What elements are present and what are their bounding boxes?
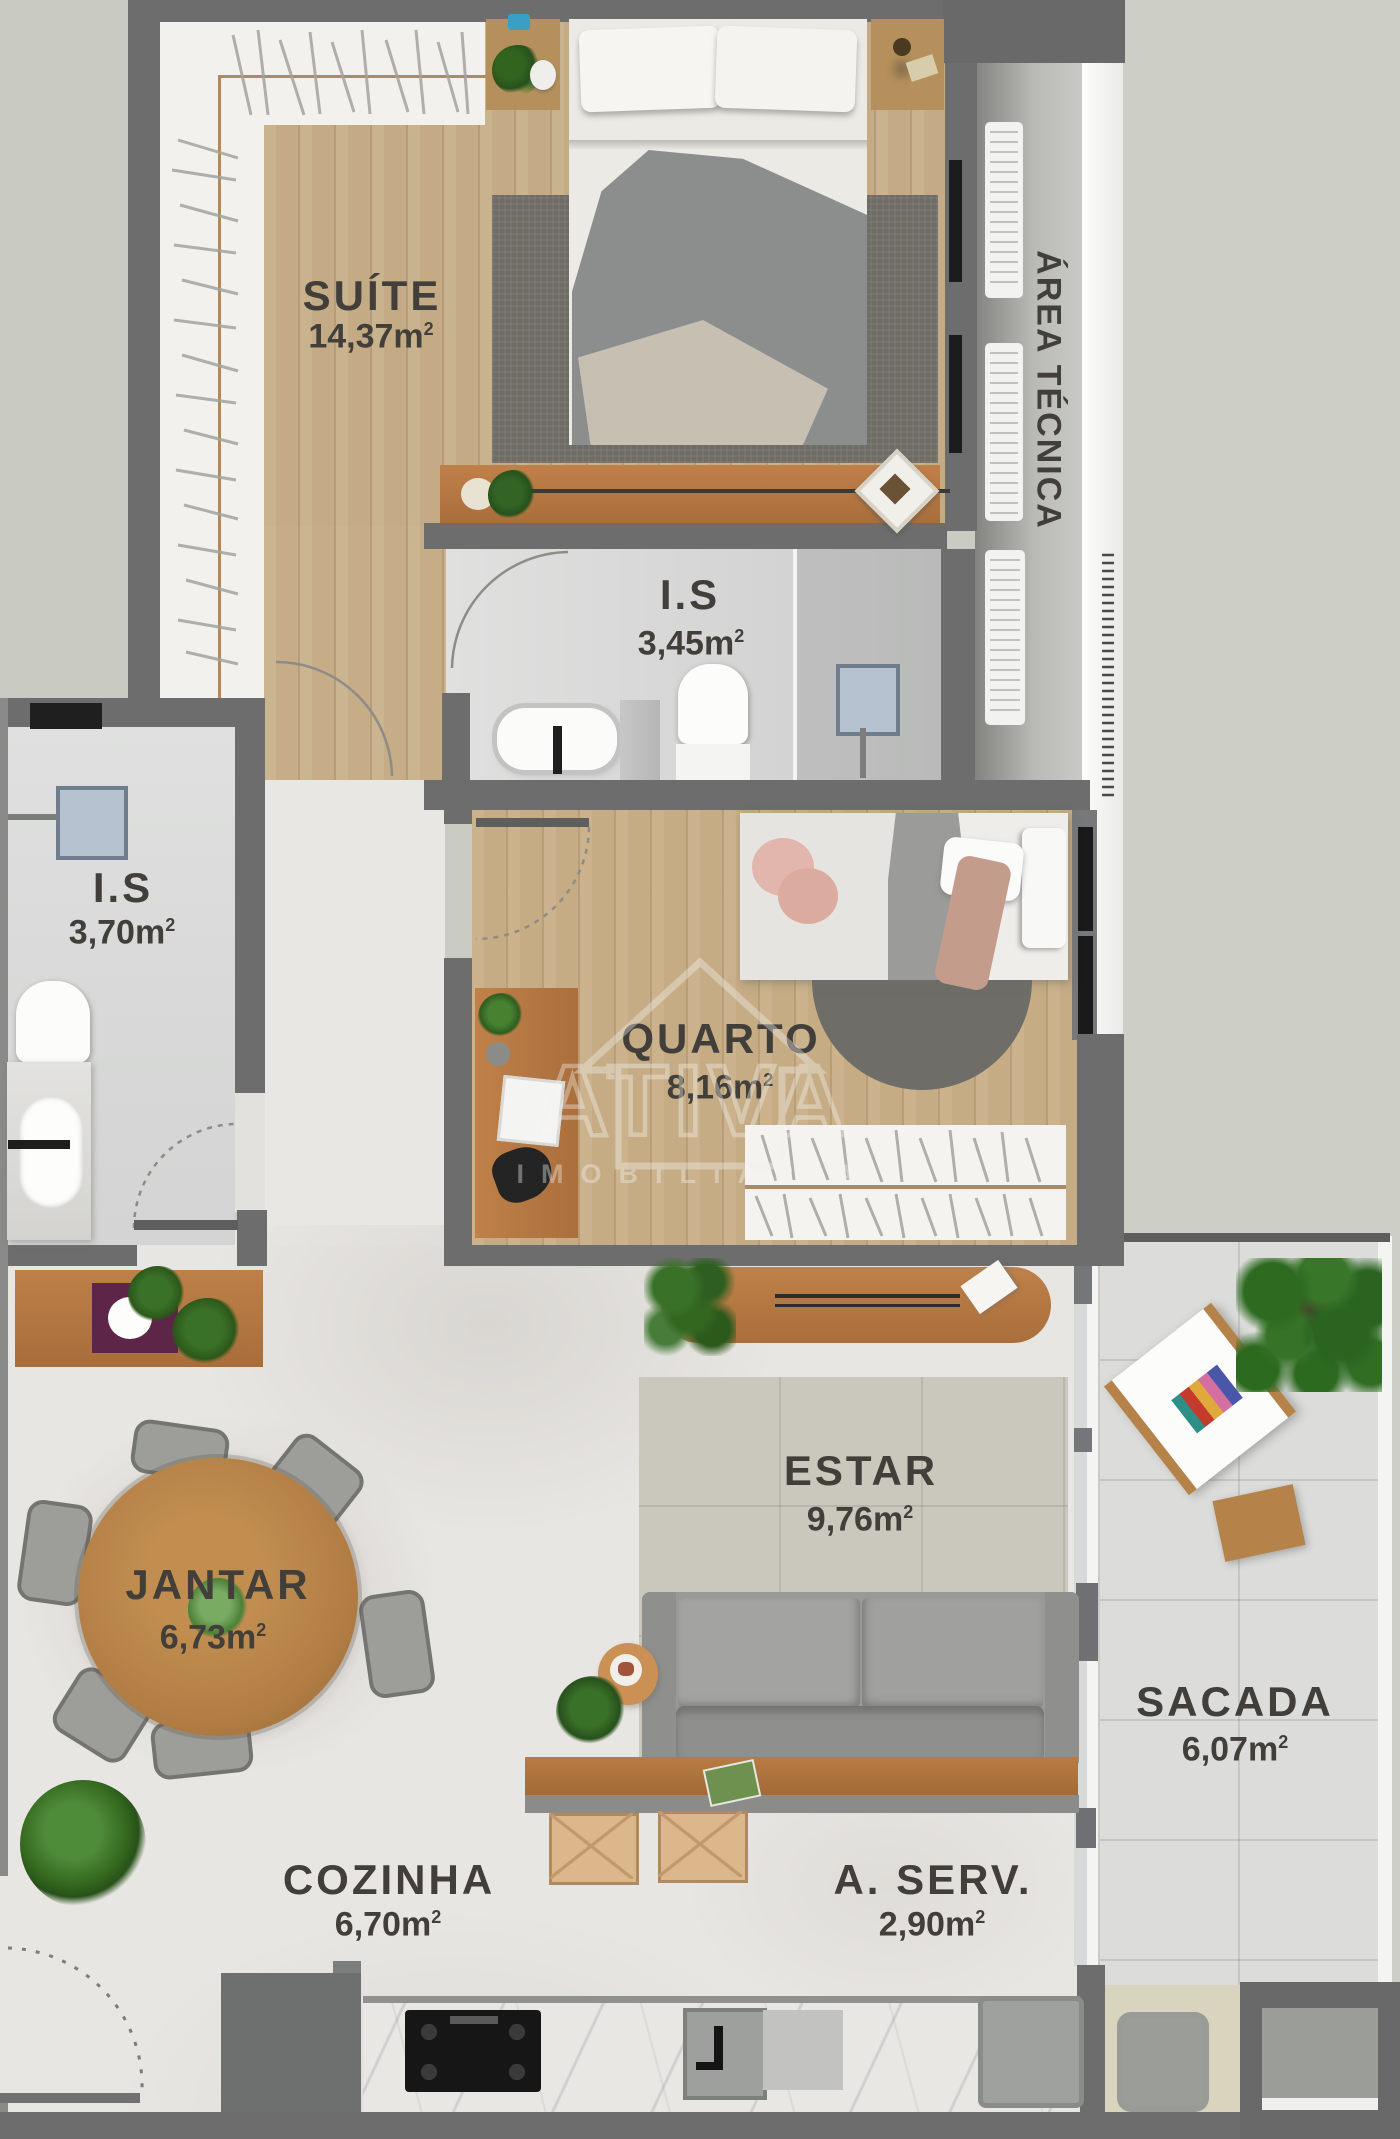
svg-text:ATIVA: ATIVA: [536, 1045, 851, 1157]
svg-text:IMOBILIÁRIA: IMOBILIÁRIA: [517, 1158, 872, 1189]
